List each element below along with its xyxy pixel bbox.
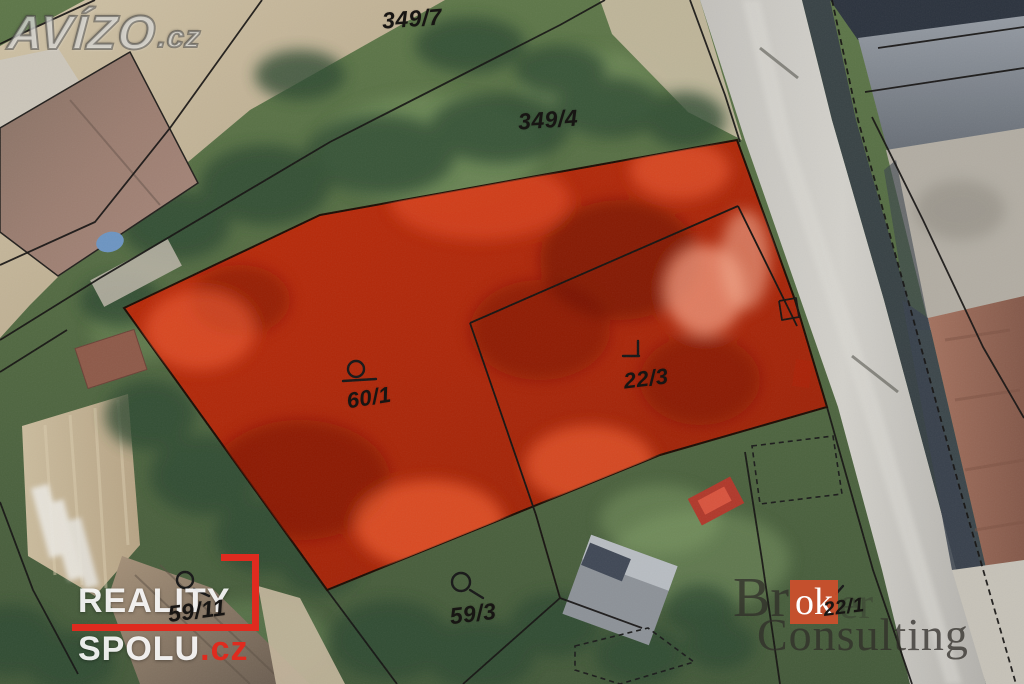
watermark-broker-consulting: Br ok er Consulting [733, 570, 1023, 658]
avizo-wordmark: AVÍZO [6, 7, 158, 60]
reality-spolu-line2: SPOLU.cz [78, 632, 248, 666]
avizo-cz-suffix: .cz [157, 21, 202, 54]
parcel-label-59-3: 59/3 [448, 598, 498, 630]
broker-consulting-line2: Consulting [757, 612, 1023, 658]
watermark-avizo: AVÍZO.cz [6, 10, 202, 58]
cadastral-aerial-map: 349/7 349/4 60/1 22/3 59/11 59/3 22/1 AV… [0, 0, 1024, 684]
parcel-label-349-4: 349/4 [517, 104, 579, 135]
reality-spolu-cz-suffix: .cz [200, 630, 248, 668]
parcel-label-22-3: 22/3 [622, 363, 670, 394]
parcel-label-349-7: 349/7 [381, 3, 443, 34]
